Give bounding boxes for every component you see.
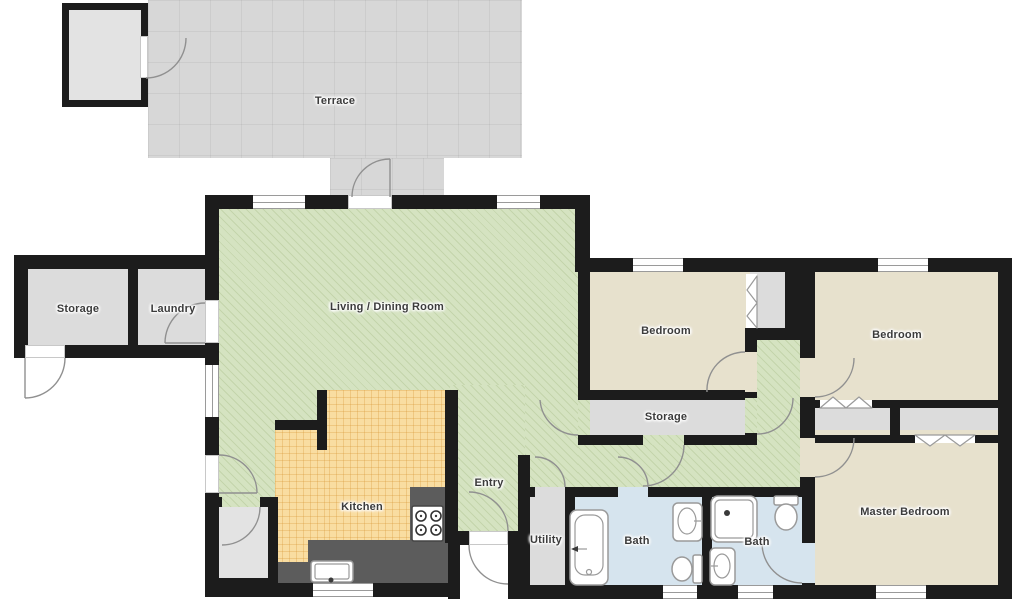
storage-exterior-door-gap bbox=[25, 345, 65, 358]
window bbox=[205, 365, 219, 417]
storage-mid-door-bottom-gap bbox=[643, 435, 684, 445]
door-swing-storage-exterior bbox=[25, 358, 65, 398]
door-swing-entry-outer bbox=[469, 545, 508, 584]
wall-bedroom-left-bottom bbox=[590, 390, 755, 400]
hall-floor-vertical bbox=[748, 335, 808, 490]
terrace-floor bbox=[148, 0, 522, 158]
wall-bath-bath bbox=[702, 497, 712, 585]
pantry-floor bbox=[219, 505, 268, 580]
wall-pantry-bottom bbox=[212, 578, 278, 588]
bedroom-left-door-gap bbox=[745, 352, 757, 392]
entry-door-gap bbox=[469, 531, 508, 545]
room-label-utility: Utility bbox=[530, 534, 562, 546]
window bbox=[738, 585, 773, 599]
wall-utility-bath bbox=[565, 497, 575, 585]
wall-hall-bottom bbox=[530, 487, 815, 497]
closet-right-bifold-gap bbox=[915, 435, 975, 443]
kitchen-counter-step bbox=[308, 540, 448, 564]
kitchen-counter-stove bbox=[410, 487, 445, 542]
wall-wing-top bbox=[14, 255, 205, 269]
window bbox=[878, 258, 928, 272]
wall-wing-left bbox=[14, 255, 28, 358]
room-label-storage-left: Storage bbox=[57, 303, 99, 315]
room-label-laundry: Laundry bbox=[151, 303, 196, 315]
master-door-gap bbox=[800, 438, 815, 477]
wall-pantry-right bbox=[268, 497, 278, 588]
wall-porch-left bbox=[448, 545, 460, 599]
window bbox=[313, 583, 373, 597]
wall-entry-right bbox=[518, 455, 530, 599]
window bbox=[876, 585, 926, 599]
wall-kitchen-right bbox=[445, 390, 458, 543]
wall-storage-laundry bbox=[128, 262, 138, 352]
wall-wardrobe-right bbox=[785, 258, 815, 330]
room-label-storage-mid: Storage bbox=[645, 411, 687, 423]
storage-mid-door-right-gap bbox=[745, 398, 757, 433]
terrace-steps bbox=[330, 158, 444, 198]
bedroom-right-door-gap bbox=[800, 358, 815, 397]
window bbox=[497, 195, 540, 209]
terrace-door-gap bbox=[348, 195, 392, 209]
room-label-entry: Entry bbox=[474, 477, 503, 489]
wardrobe-bifold-gap bbox=[746, 274, 757, 328]
room-label-living: Living / Dining Room bbox=[330, 301, 444, 313]
room-label-kitchen: Kitchen bbox=[341, 501, 383, 513]
window bbox=[633, 258, 683, 272]
closet-left-bifold-gap bbox=[820, 400, 872, 408]
window bbox=[663, 585, 697, 599]
pantry-door-gap bbox=[222, 497, 260, 507]
room-label-bath-right: Bath bbox=[744, 536, 769, 548]
ensuite-door-gap bbox=[802, 543, 815, 583]
utility-door-gap bbox=[535, 487, 565, 497]
window bbox=[253, 195, 305, 209]
room-label-bedroom-right: Bedroom bbox=[872, 329, 922, 341]
storage-mid-door-left-gap bbox=[578, 400, 590, 435]
room-label-master: Master Bedroom bbox=[860, 506, 950, 518]
entry-floor bbox=[450, 385, 525, 535]
wall-kitchen-partition-h bbox=[275, 420, 320, 430]
room-label-terrace: Terrace bbox=[315, 95, 355, 107]
shed-door-gap bbox=[140, 36, 148, 78]
wall-closet-divider bbox=[890, 405, 900, 435]
kitchen-counter-bottom bbox=[278, 562, 448, 583]
room-label-bath-left: Bath bbox=[624, 535, 649, 547]
wall-right bbox=[998, 258, 1012, 599]
laundry-door-gap bbox=[205, 300, 219, 343]
floor-plan: Terrace Storage Laundry Living / Dining … bbox=[0, 0, 1024, 600]
shed-floor bbox=[69, 10, 141, 100]
room-label-bedroom-left: Bedroom bbox=[641, 325, 691, 337]
bath-left-door-gap bbox=[618, 487, 648, 497]
living-side-door-gap bbox=[205, 455, 219, 493]
